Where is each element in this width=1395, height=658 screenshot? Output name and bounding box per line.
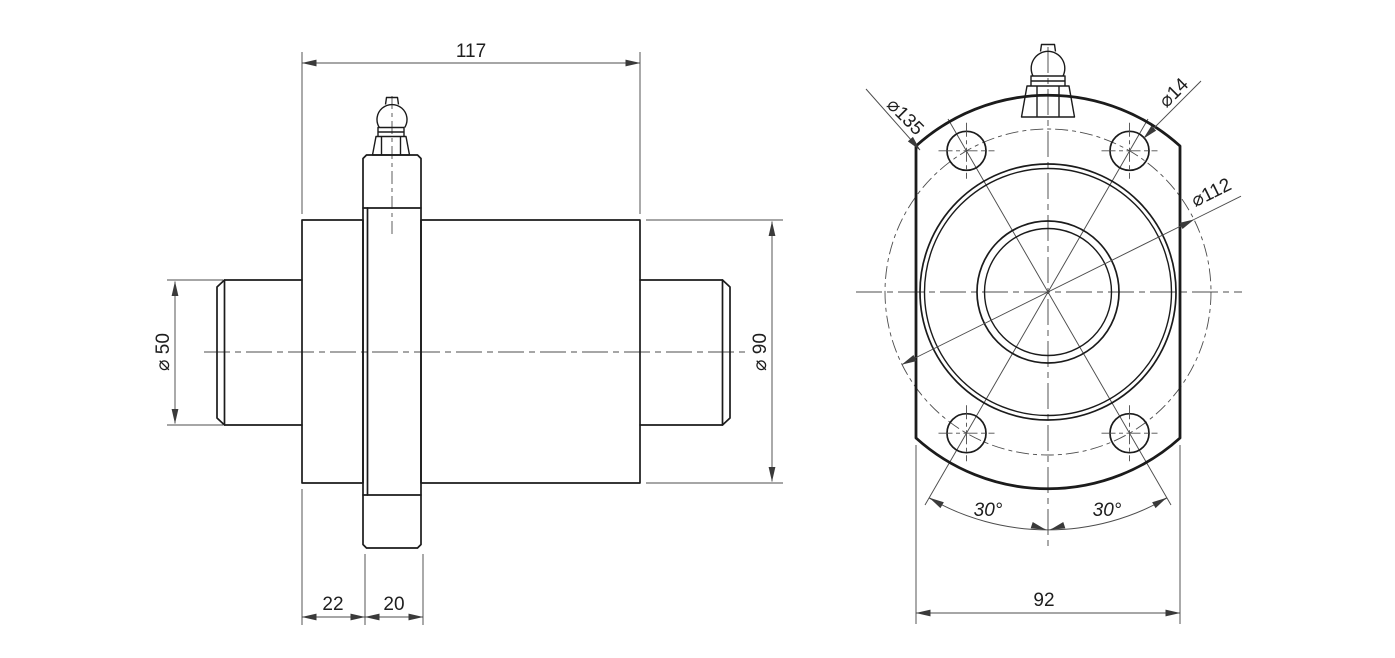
dim-label-left-section: 22 — [322, 594, 343, 615]
dim-label-shaft-diameter: ⌀ 50 — [153, 333, 174, 371]
front-view: ⌀135 ⌀14 ⌀112 30° 30° 92 — [856, 45, 1242, 625]
left-shaft — [217, 280, 302, 425]
dimension-shaft-diameter: ⌀ 50 — [153, 280, 223, 425]
main-cylinder — [421, 220, 640, 483]
dimension-flange-thickness: 20 — [365, 594, 423, 617]
dim-label-width-across-flats: 92 — [1033, 590, 1054, 611]
dimension-bolt-hole-diameter: ⌀14 — [1144, 74, 1202, 139]
dimension-body-diameter: ⌀ 90 — [646, 220, 783, 483]
right-shaft — [640, 280, 730, 425]
hole-diagonal-line — [948, 119, 1171, 505]
dim-label-total-length: 117 — [456, 41, 486, 62]
technical-drawing: 117 ⌀ 50 ⌀ 90 22 20 — [0, 0, 1395, 658]
side-view: 117 ⌀ 50 ⌀ 90 22 20 — [153, 41, 783, 625]
hole-diagonal-line — [925, 119, 1148, 505]
body-left-section — [302, 220, 363, 483]
drawing-canvas: 117 ⌀ 50 ⌀ 90 22 20 — [0, 0, 1395, 658]
dimension-total-length: 117 — [302, 41, 640, 214]
grease-fitting-icon — [373, 98, 410, 156]
dimension-flange-outer-diameter: ⌀135 — [866, 89, 928, 150]
dim-label-angle-right: 30° — [1093, 500, 1122, 521]
dim-label-flange-thickness: 20 — [383, 594, 404, 615]
dim-label-bolt-circle-diameter: ⌀112 — [1188, 174, 1235, 211]
dimension-bolt-circle-diameter: ⌀112 — [902, 174, 1241, 364]
dim-label-body-diameter: ⌀ 90 — [750, 333, 771, 371]
dim-label-angle-left: 30° — [974, 500, 1003, 521]
dim-label-bolt-hole-diameter: ⌀14 — [1155, 74, 1193, 112]
